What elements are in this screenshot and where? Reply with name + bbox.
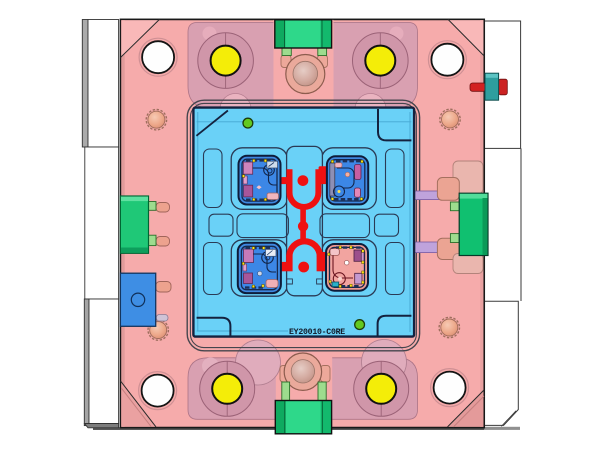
svg-text:EY20010-C0RE: EY20010-C0RE — [289, 328, 345, 337]
